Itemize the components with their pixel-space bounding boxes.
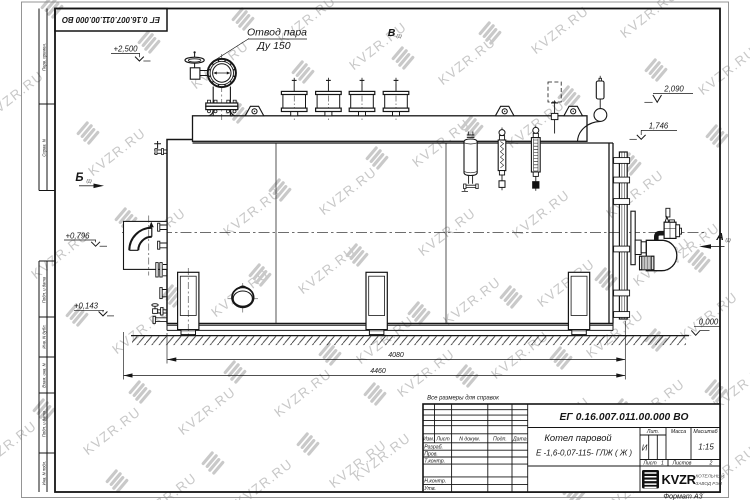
svg-text:KVZR: KVZR <box>662 472 697 487</box>
svg-text:Справ. N: Справ. N <box>42 138 47 156</box>
svg-text:4460: 4460 <box>370 368 386 375</box>
svg-text:Лит.: Лит. <box>646 429 659 435</box>
svg-text:Масштаб: Масштаб <box>693 429 718 435</box>
svg-text:N докум.: N докум. <box>459 437 480 443</box>
svg-text:Масса: Масса <box>671 429 686 435</box>
svg-text:(2): (2) <box>87 179 93 184</box>
svg-text:0,000: 0,000 <box>699 317 719 326</box>
svg-text:Подп. и дата: Подп. и дата <box>42 276 47 303</box>
svg-text:КОТЕЛЬНЫЙ: КОТЕЛЬНЫЙ <box>696 472 726 479</box>
svg-text:Лист: Лист <box>435 437 450 443</box>
svg-text:Все размеры для справок: Все размеры для справок <box>427 396 500 402</box>
svg-text:+0,796: +0,796 <box>65 231 90 240</box>
svg-text:В: В <box>388 27 396 39</box>
svg-text:Отвод пара: Отвод пара <box>247 27 307 39</box>
svg-text:1: 1 <box>661 461 664 467</box>
svg-text:ЕГ 0.16.007.011.00.000 ВО: ЕГ 0.16.007.011.00.000 ВО <box>62 15 160 24</box>
svg-text:Формат А3: Формат А3 <box>663 491 702 500</box>
svg-text:Е -1,6-0,07-115- ГЛЖ ( Ж ): Е -1,6-0,07-115- ГЛЖ ( Ж ) <box>536 449 632 458</box>
svg-text:Т.контр.: Т.контр. <box>424 458 445 464</box>
svg-text:Разраб.: Разраб. <box>424 445 443 451</box>
svg-text:Инв. N подл.: Инв. N подл. <box>42 461 47 485</box>
svg-text:Подп. и дата: Подп. и дата <box>42 410 47 437</box>
svg-text:Изм.: Изм. <box>423 437 434 443</box>
svg-text:ЕГ 0.16.007.011.00.000 ВО: ЕГ 0.16.007.011.00.000 ВО <box>560 412 689 423</box>
svg-text:Котел паровой: Котел паровой <box>544 432 612 443</box>
svg-text:Листов: Листов <box>672 461 692 467</box>
svg-text:2: 2 <box>709 461 713 467</box>
svg-text:ЗАВОД РЭП: ЗАВОД РЭП <box>696 481 723 486</box>
svg-text:Лист: Лист <box>642 461 657 467</box>
svg-text:Утв.: Утв. <box>424 486 436 492</box>
svg-text:А: А <box>715 231 724 243</box>
svg-text:И: И <box>642 444 648 453</box>
svg-text:Подп.: Подп. <box>493 437 507 443</box>
svg-text:Пров.: Пров. <box>424 451 438 457</box>
svg-text:(2): (2) <box>726 238 732 243</box>
svg-text:4080: 4080 <box>388 352 404 359</box>
svg-text:+0,143: +0,143 <box>74 302 99 311</box>
svg-text:Б: Б <box>75 172 83 184</box>
svg-text:Инв. N дубл.: Инв. N дубл. <box>42 324 47 348</box>
svg-text:(2): (2) <box>397 34 403 39</box>
svg-text:Н.контр.: Н.контр. <box>424 479 446 485</box>
svg-text:Взам. инв. N: Взам. инв. N <box>42 362 47 387</box>
svg-text:2,090: 2,090 <box>663 85 684 94</box>
svg-text:1:15: 1:15 <box>698 443 714 452</box>
svg-text:Ду 150: Ду 150 <box>256 40 290 52</box>
svg-text:Дата: Дата <box>512 437 527 443</box>
svg-text:Перв. примен.: Перв. примен. <box>42 43 47 71</box>
svg-text:+2,500: +2,500 <box>113 45 138 54</box>
svg-text:1,746: 1,746 <box>649 122 669 131</box>
